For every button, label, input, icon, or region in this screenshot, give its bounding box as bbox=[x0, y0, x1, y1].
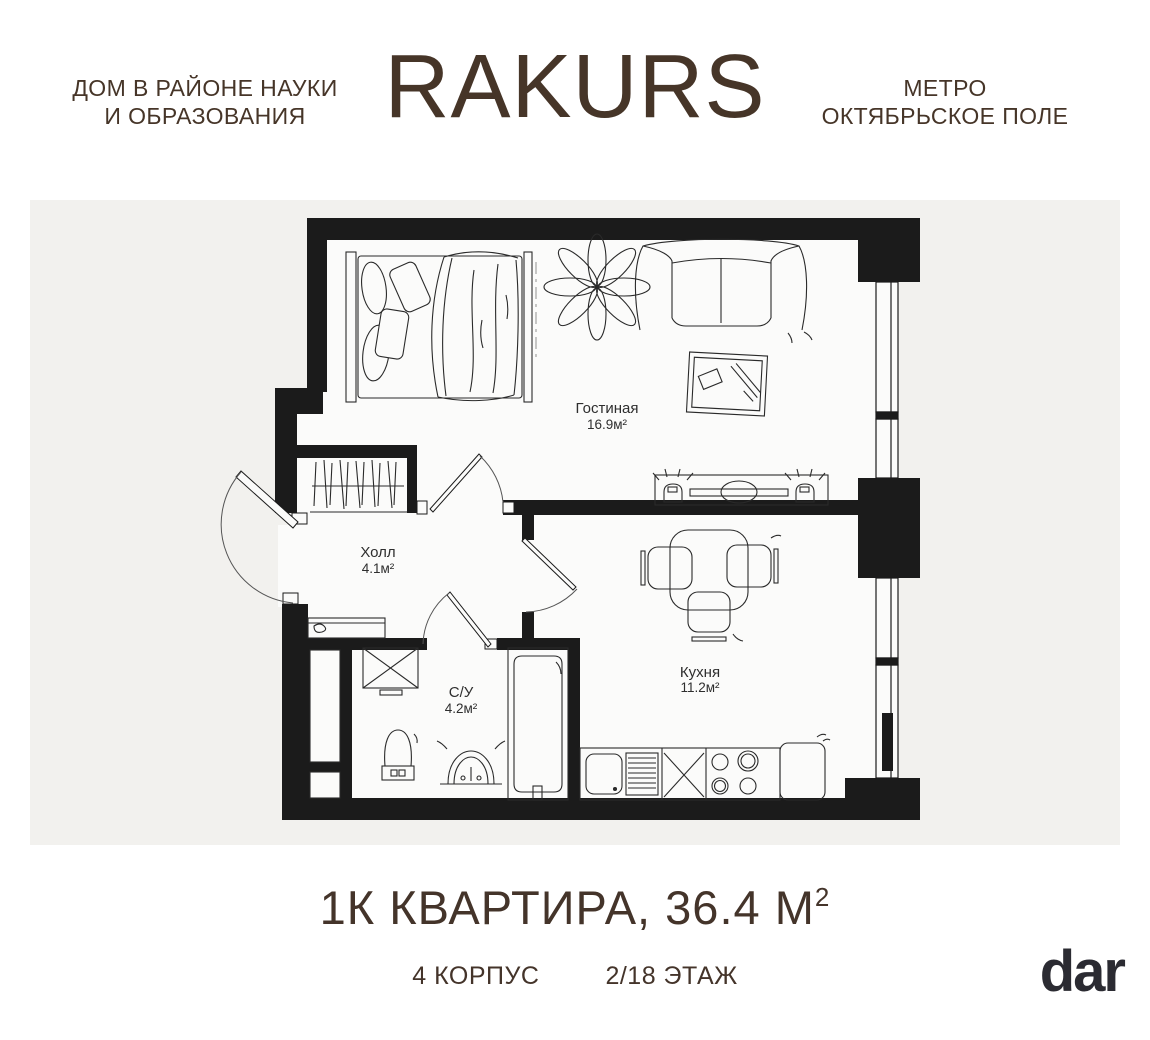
apartment-title: 1К КВАРТИРА, 36.4 М2 bbox=[0, 880, 1150, 935]
svg-text:4.1м²: 4.1м² bbox=[362, 561, 395, 576]
room-label-bathroom: С/У 4.2м² bbox=[445, 684, 478, 716]
svg-text:Холл: Холл bbox=[360, 544, 395, 561]
svg-text:11.2м²: 11.2м² bbox=[680, 680, 720, 695]
svg-text:С/У: С/У bbox=[449, 684, 474, 701]
shafts bbox=[310, 650, 340, 798]
room-label-hall: Холл 4.1м² bbox=[360, 544, 395, 576]
svg-text:Гостиная: Гостиная bbox=[576, 400, 639, 417]
building-label: 4 КОРПУС bbox=[412, 962, 539, 991]
floor-plan: Гостиная 16.9м² Холл 4.1м² С/У 4.2м² Кух… bbox=[30, 200, 1120, 845]
dar-logo: dar bbox=[1040, 938, 1124, 1005]
floor-label: 2/18 ЭТАЖ bbox=[605, 962, 737, 991]
metro-line2: ОКТЯБРЬСКОЕ ПОЛЕ bbox=[795, 102, 1095, 130]
interior-fill bbox=[278, 240, 898, 798]
svg-text:16.9м²: 16.9м² bbox=[587, 417, 628, 432]
floor-plan-panel: Гостиная 16.9м² Холл 4.1м² С/У 4.2м² Кух… bbox=[30, 200, 1120, 845]
apartment-title-sup: 2 bbox=[815, 882, 830, 912]
svg-text:Кухня: Кухня bbox=[680, 664, 720, 681]
apartment-title-text: 1К КВАРТИРА, 36.4 М bbox=[320, 881, 815, 934]
room-label-kitchen: Кухня 11.2м² bbox=[680, 664, 720, 695]
metro-line1: МЕТРО bbox=[795, 74, 1095, 102]
svg-text:4.2м²: 4.2м² bbox=[445, 701, 478, 716]
metro-label: МЕТРО ОКТЯБРЬСКОЕ ПОЛЕ bbox=[795, 74, 1095, 130]
flyer-page: ДОМ В РАЙОНЕ НАУКИ И ОБРАЗОВАНИЯ RAKURS … bbox=[0, 0, 1150, 1040]
apartment-subtitle: 4 КОРПУС 2/18 ЭТАЖ bbox=[0, 962, 1150, 991]
